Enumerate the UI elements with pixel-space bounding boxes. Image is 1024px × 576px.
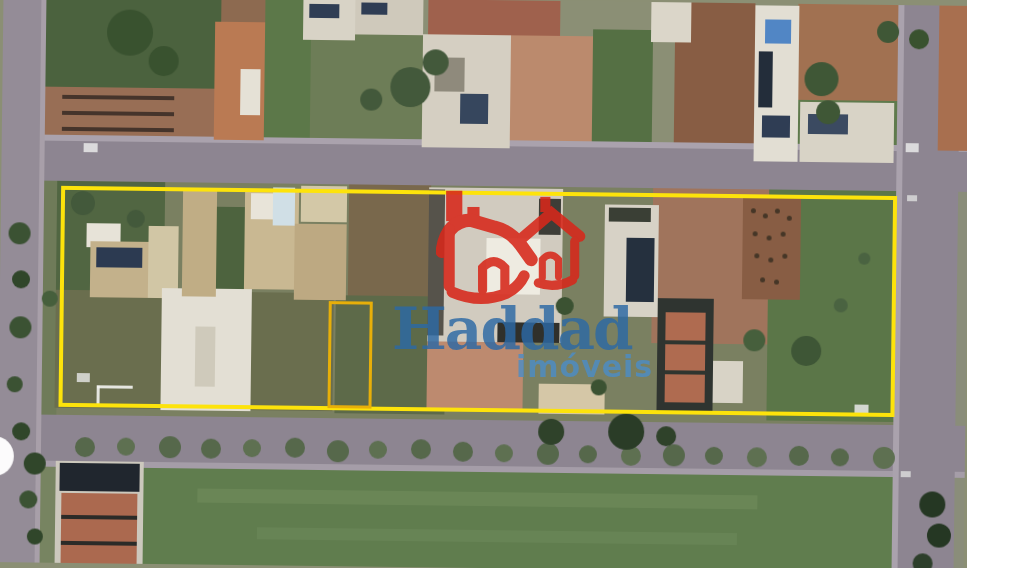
- tree: [919, 491, 945, 517]
- sub-lot-highlight: [327, 301, 372, 409]
- tree: [285, 438, 305, 458]
- tree: [27, 528, 43, 544]
- tree: [411, 439, 431, 459]
- tree: [453, 442, 473, 462]
- tree: [24, 452, 46, 474]
- tree: [789, 446, 809, 466]
- swimming-pool: [765, 19, 791, 43]
- tree: [495, 444, 513, 462]
- tree: [877, 21, 899, 43]
- tree: [243, 439, 261, 457]
- tree: [8, 222, 30, 244]
- dirt-lot: [428, 0, 560, 39]
- lot-marker: [906, 143, 919, 152]
- solar-panel: [460, 94, 488, 124]
- tree: [705, 447, 723, 465]
- world: [0, 0, 967, 568]
- tree: [608, 414, 644, 450]
- tree: [149, 46, 179, 76]
- tree: [579, 445, 597, 463]
- tree: [42, 291, 58, 307]
- lot-marker: [901, 471, 911, 477]
- tree: [831, 448, 849, 466]
- tree: [75, 437, 95, 457]
- tree: [9, 316, 31, 338]
- tree: [909, 29, 929, 49]
- house-roof: [651, 2, 691, 42]
- tree: [117, 438, 135, 456]
- property-boundary-highlight: [58, 186, 897, 417]
- tree: [327, 440, 349, 462]
- tree: [7, 376, 23, 392]
- dirt-lot: [510, 35, 595, 149]
- tree: [912, 553, 932, 568]
- warehouse-roof-dark: [59, 463, 139, 492]
- tree: [201, 439, 221, 459]
- solar-panel: [758, 51, 773, 107]
- house-roof: [938, 6, 967, 151]
- satellite-photo: Haddad imóveis: [0, 0, 967, 568]
- lot-marker: [84, 143, 98, 152]
- solar-panel: [309, 4, 339, 18]
- tree: [159, 436, 181, 458]
- tree: [927, 523, 951, 547]
- real-estate-listing-image: Haddad imóveis: [0, 0, 1024, 576]
- tree: [12, 270, 30, 288]
- tree: [656, 426, 676, 446]
- tree: [537, 443, 559, 465]
- warehouse-interior: [61, 493, 138, 564]
- lot-marker: [907, 195, 917, 201]
- tree: [747, 447, 767, 467]
- tree: [816, 100, 840, 124]
- tree: [873, 447, 895, 469]
- roof-section: [240, 69, 261, 115]
- tree: [663, 444, 685, 466]
- tree: [19, 490, 37, 508]
- tree: [369, 441, 387, 459]
- aerial-scene: [0, 0, 967, 568]
- tree: [12, 422, 30, 440]
- tree: [360, 88, 382, 110]
- solar-panel: [361, 2, 387, 14]
- green-lot: [592, 29, 653, 150]
- solar-panel: [762, 115, 790, 137]
